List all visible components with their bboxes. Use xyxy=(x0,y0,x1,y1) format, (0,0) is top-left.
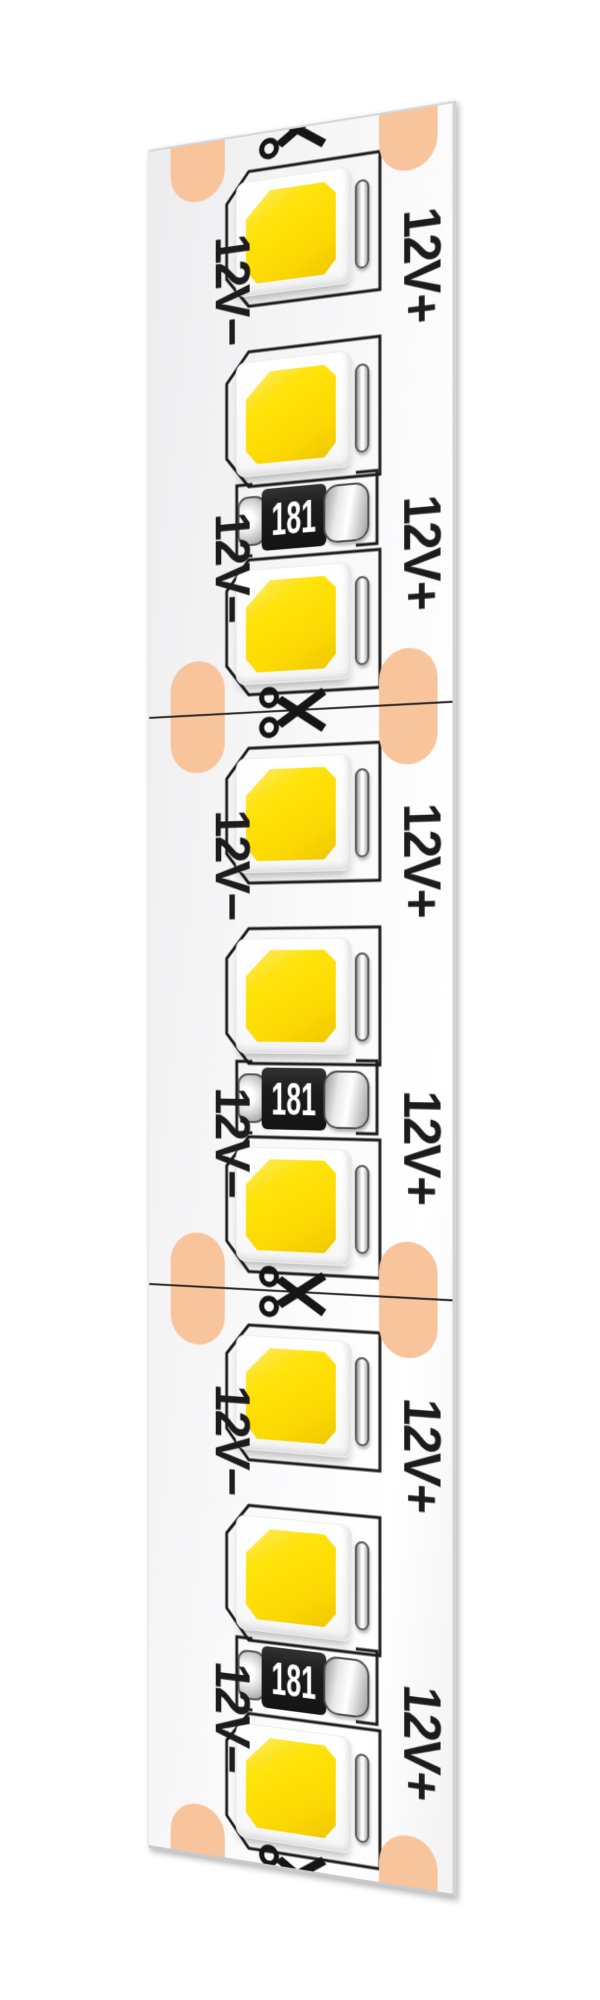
led-terminal xyxy=(355,952,369,1041)
led-phosphor xyxy=(246,1527,336,1628)
led-strip: 181 12V− 12V+ 12V− 12V+ xyxy=(148,101,456,1898)
voltage-positive-label: 12V+ xyxy=(395,802,448,917)
led-chip xyxy=(236,937,352,1054)
resistor-code-label: 181 xyxy=(272,492,317,542)
scissors-icon xyxy=(258,679,329,743)
voltage-positive-label: 12V+ xyxy=(395,1090,448,1205)
led-chip xyxy=(236,1514,352,1642)
resistor-body: 181 xyxy=(262,483,327,551)
led-terminal xyxy=(355,363,369,454)
voltage-positive-label: 12V+ xyxy=(395,1396,448,1514)
resistor-cap-right xyxy=(323,1655,369,1719)
voltage-negative-label: 12V− xyxy=(208,1383,257,1497)
resistor-body: 181 xyxy=(262,1646,327,1716)
scissors-icon xyxy=(258,101,329,166)
voltage-positive-label: 12V+ xyxy=(395,1682,448,1803)
resistor-cap-right xyxy=(323,481,369,544)
led-chip xyxy=(236,350,352,478)
voltage-negative-label: 12V− xyxy=(208,510,257,624)
voltage-negative-label: 12V− xyxy=(208,231,257,347)
led-terminal xyxy=(355,178,369,269)
voltage-negative-label: 12V− xyxy=(208,809,257,920)
resistor-body: 181 xyxy=(262,1068,327,1131)
resistor-code-label: 181 xyxy=(272,1655,317,1707)
resistor-cap-right xyxy=(323,1070,369,1129)
led-terminal xyxy=(355,1165,369,1255)
cut-boundary xyxy=(149,102,456,151)
voltage-negative-label: 12V− xyxy=(208,1087,257,1198)
led-terminal xyxy=(355,576,369,666)
strip-segment: 181 12V− 12V+ 12V− 12V+ xyxy=(149,702,456,1301)
product-render-scene: 181 12V− 12V+ 12V− 12V+ xyxy=(0,0,600,2000)
solder-pad xyxy=(379,1241,438,1360)
led-phosphor xyxy=(246,364,336,466)
solder-pad xyxy=(171,1800,225,1898)
voltage-positive-label: 12V+ xyxy=(395,493,448,611)
voltage-positive-label: 12V+ xyxy=(395,204,448,325)
led-terminal xyxy=(355,1357,369,1447)
led-terminal xyxy=(355,768,369,858)
solder-pad xyxy=(171,101,225,206)
cut-boundary xyxy=(149,1284,456,1301)
led-phosphor xyxy=(246,950,336,1043)
led-terminal xyxy=(355,1753,369,1844)
scissors-icon xyxy=(258,1261,329,1325)
solder-pad xyxy=(171,1231,225,1346)
cut-boundary xyxy=(149,702,456,718)
scissors-icon xyxy=(258,1839,329,1898)
led-terminal xyxy=(355,1541,369,1632)
voltage-negative-label: 12V− xyxy=(208,1659,257,1776)
resistor-code-label: 181 xyxy=(272,1076,317,1123)
